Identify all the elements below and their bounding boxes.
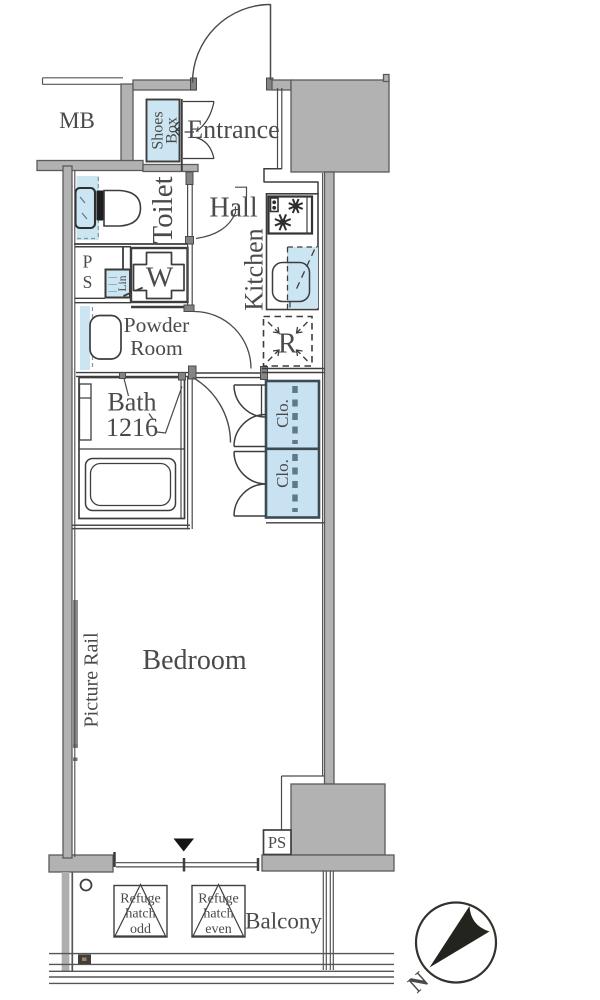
svg-text:W: W <box>146 262 174 294</box>
svg-text:odd: odd <box>130 922 151 937</box>
svg-text:Toilet: Toilet <box>147 176 179 243</box>
svg-text:Lin: Lin <box>117 275 129 291</box>
svg-text:Kitchen: Kitchen <box>240 228 269 310</box>
svg-text:P: P <box>83 252 93 272</box>
svg-text:Hall: Hall <box>209 193 257 224</box>
svg-text:S: S <box>83 272 93 292</box>
svg-text:hatch: hatch <box>203 907 233 922</box>
svg-text:PS: PS <box>268 833 286 852</box>
svg-text:Powder: Powder <box>124 313 190 337</box>
svg-text:Entrance: Entrance <box>187 115 279 144</box>
svg-text:Balcony: Balcony <box>245 909 322 934</box>
svg-text:1216: 1216 <box>106 413 158 442</box>
svg-text:Picture Rail: Picture Rail <box>81 632 103 727</box>
svg-text:MB: MB <box>59 108 95 133</box>
svg-text:Clo.: Clo. <box>273 399 292 428</box>
svg-text:hatch: hatch <box>125 907 155 922</box>
svg-text:Room: Room <box>130 336 183 360</box>
svg-text:R: R <box>278 329 297 360</box>
svg-text:Refuge: Refuge <box>198 892 238 907</box>
svg-text:Bedroom: Bedroom <box>142 645 246 676</box>
svg-text:even: even <box>205 922 231 937</box>
svg-text:Box: Box <box>164 117 181 144</box>
svg-text:Clo.: Clo. <box>273 459 292 488</box>
svg-text:Refuge: Refuge <box>120 892 160 907</box>
